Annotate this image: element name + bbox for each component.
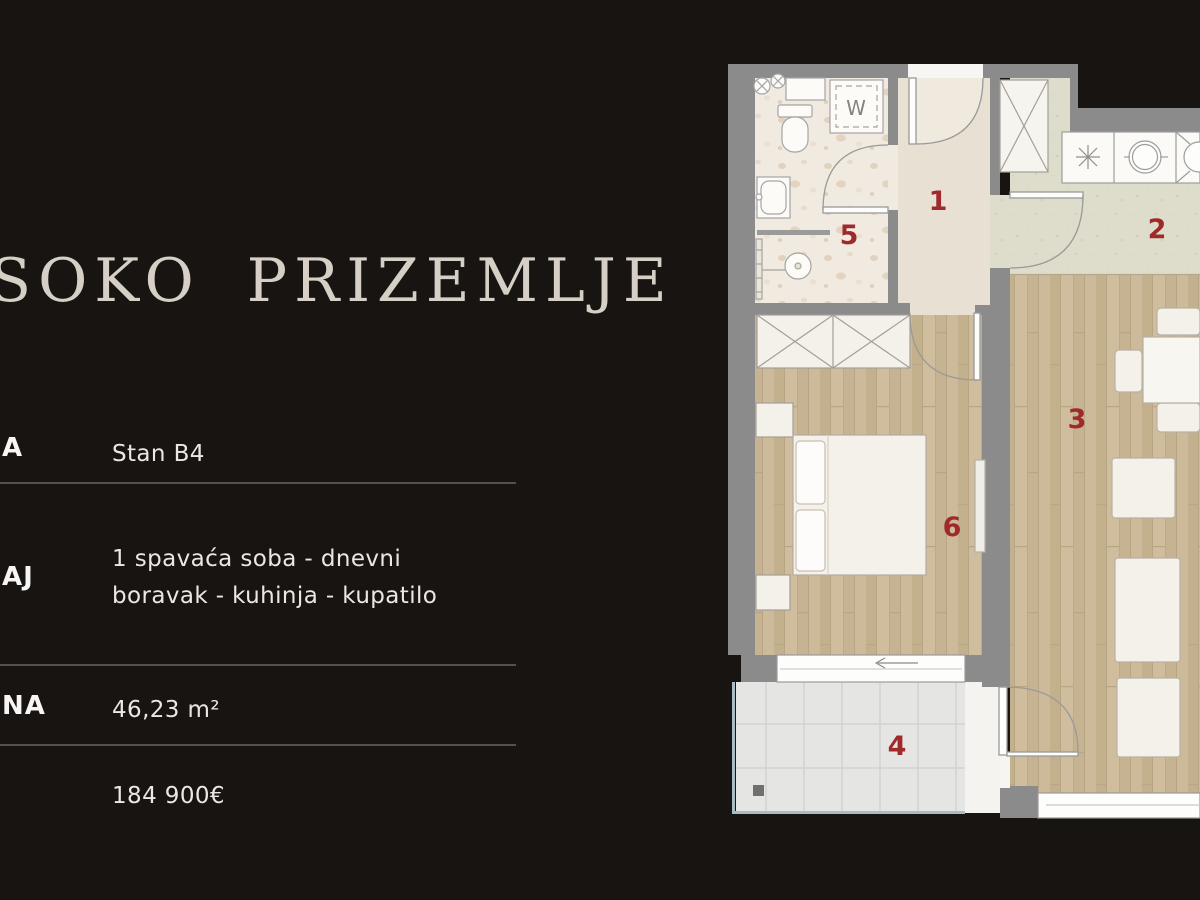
kitchen-door-gap — [990, 195, 1010, 268]
wall-hall-kitchen-lower — [990, 268, 1010, 313]
divider-1 — [0, 482, 516, 484]
hallway-closet — [1000, 80, 1048, 172]
bedroom-door-gap — [910, 303, 975, 315]
balcony-floor — [736, 682, 965, 814]
dining-chair-top — [1157, 308, 1200, 335]
room-number-5: 5 — [840, 220, 859, 251]
door-jamb-strip — [1000, 755, 1010, 788]
wall-window-jamb-right — [965, 655, 982, 682]
row-value-area: 46,23 m² — [112, 692, 220, 729]
shower-partition — [757, 230, 830, 235]
washbasin-tap — [756, 194, 762, 200]
row-value-price: 184 900€ — [112, 778, 225, 815]
shower-head-center — [795, 263, 801, 269]
entry-opening — [908, 64, 983, 78]
bedroom-door-leaf — [974, 313, 980, 380]
wall-step — [1070, 64, 1078, 110]
wall-bath-bedroom — [728, 303, 910, 315]
floorplan: 1 2 3 4 5 6 W — [728, 64, 1200, 820]
slide: SOKO PRIZEMLJE A Stan B4 AJ 1 spavaća so… — [0, 0, 1200, 900]
armchair-2 — [1117, 678, 1180, 757]
dining-chair-left — [1115, 350, 1142, 392]
wall-bedroom-living — [982, 313, 1010, 687]
kitchen-door-leaf — [1010, 192, 1083, 198]
balcony-door-leaf — [999, 687, 1007, 755]
wall-bath-hall-lower — [888, 210, 898, 315]
room-number-6: 6 — [943, 512, 962, 543]
room-number-3: 3 — [1068, 404, 1087, 435]
nightstand-bottom — [756, 575, 790, 610]
balcony-drain — [753, 785, 764, 796]
room-number-1: 1 — [929, 186, 948, 217]
nightstand-top — [756, 403, 793, 437]
bathroom-door-gap — [888, 145, 898, 210]
balcony-pier — [965, 682, 982, 813]
wall-hall-kitchen-upper — [990, 78, 1000, 195]
kitchen-sink-icon — [1129, 141, 1161, 173]
wall-bath-hall-upper — [888, 78, 898, 145]
dining-table — [1143, 337, 1200, 403]
toilet-bowl — [782, 117, 808, 152]
kitchen-counter — [1062, 132, 1200, 183]
pillow-2 — [796, 510, 825, 571]
washer-label: W — [846, 96, 866, 120]
page-title: SOKO PRIZEMLJE — [0, 246, 674, 316]
hob-icon — [1076, 145, 1100, 169]
armchair-1 — [1112, 458, 1175, 518]
living-pier — [982, 687, 1000, 813]
divider-3 — [0, 744, 516, 746]
entry-door-leaf — [909, 78, 916, 144]
bathroom-door-leaf — [823, 207, 888, 213]
room-number-4: 4 — [888, 731, 907, 762]
dining-chair-bottom — [1157, 403, 1200, 432]
towel-radiator — [756, 239, 762, 299]
room-number-2: 2 — [1148, 214, 1167, 245]
row-label-contents: AJ — [2, 562, 34, 592]
balcony-rail-left — [732, 682, 735, 814]
wall-window-jamb-left — [741, 655, 777, 682]
row-label-building: A — [2, 433, 23, 463]
bathroom-counter — [786, 78, 825, 100]
wall-living-bottom — [1000, 786, 1038, 818]
row-value-unit: Stan B4 — [112, 436, 205, 473]
balcony-door-open-leaf — [1007, 752, 1078, 756]
row-value-description: 1 spavaća soba - dnevni boravak - kuhinj… — [112, 541, 452, 615]
wall-left — [728, 64, 755, 655]
sofa — [1115, 558, 1180, 662]
divider-2 — [0, 664, 516, 666]
balcony-rail-bottom — [732, 811, 965, 814]
building-notch — [1077, 64, 1200, 108]
wall-kitchen-top — [1070, 108, 1200, 132]
pillow-1 — [796, 441, 825, 504]
toilet-tank — [778, 105, 812, 117]
sliding-panel — [975, 460, 985, 552]
row-label-area: NA — [2, 691, 46, 721]
